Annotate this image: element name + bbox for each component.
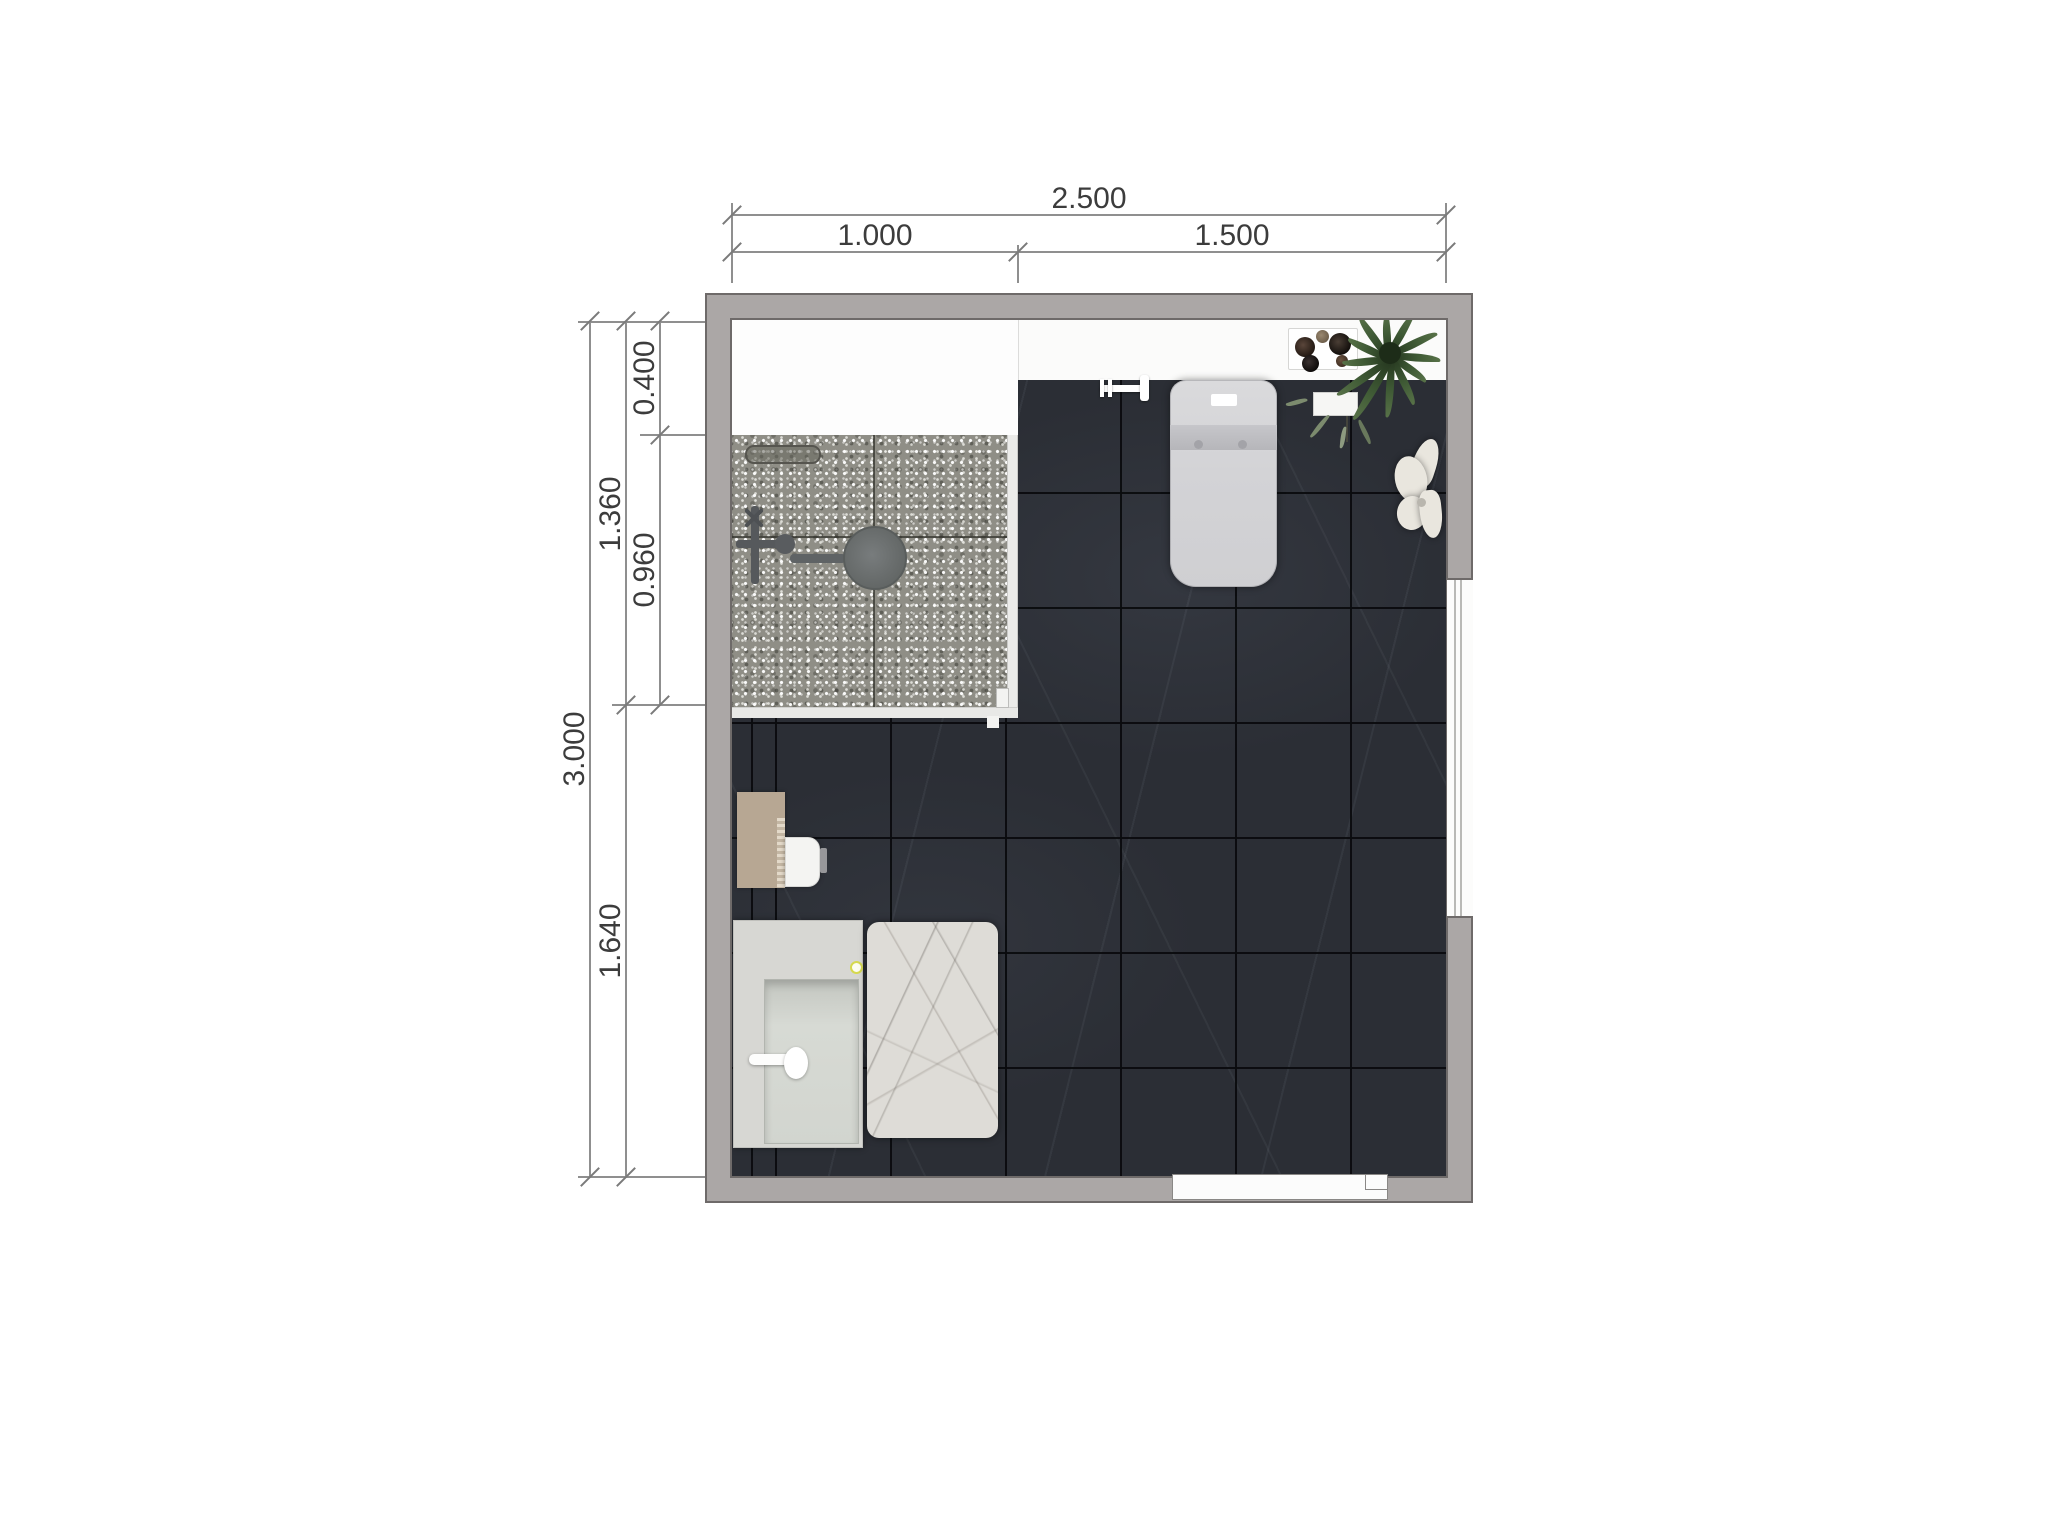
window xyxy=(1447,578,1473,918)
shower-door-pivot xyxy=(987,716,999,728)
dim-left-total: 3.000 xyxy=(558,711,592,786)
extension-line xyxy=(578,321,705,323)
floor-drain-icon xyxy=(745,445,821,464)
sink-vanity xyxy=(733,920,863,1148)
dim-left-top-ledge: 0.400 xyxy=(628,340,662,415)
dim-top-total: 2.500 xyxy=(1051,182,1126,216)
shower-door-frame xyxy=(732,707,1018,718)
shower-ledge xyxy=(732,320,1018,435)
dim-top-left-segment: 1.000 xyxy=(837,219,912,253)
pebble-icon xyxy=(1295,337,1315,357)
shower-door-handle xyxy=(996,688,1009,708)
toilet xyxy=(1170,380,1277,587)
shower-glass-partition xyxy=(1007,435,1018,718)
pebble-icon xyxy=(1302,355,1319,372)
floor-plan-page: 2.500 1.000 1.500 3.000 1.360 1.640 0.40… xyxy=(0,0,2048,1536)
toilet-hinge-icon xyxy=(1238,440,1247,449)
potted-fern-icon xyxy=(1340,318,1440,407)
cabinet-fringe xyxy=(777,818,785,888)
door xyxy=(1172,1174,1388,1200)
paper-holder-icon xyxy=(785,837,820,887)
paper-holder-bracket xyxy=(820,848,827,873)
wall-faucet-handle-icon xyxy=(1108,379,1112,397)
hand-shower-icon xyxy=(775,534,795,554)
dim-top-right-segment: 1.500 xyxy=(1194,219,1269,253)
dim-left-upper-total: 1.360 xyxy=(594,476,628,551)
wall-faucet-handle-icon xyxy=(1100,379,1104,397)
side-cabinet xyxy=(737,792,785,888)
extension-line xyxy=(640,434,705,436)
room-interior xyxy=(730,318,1448,1178)
dimension-line-height-groups xyxy=(625,321,627,1177)
towel-flower-decor-icon xyxy=(1395,438,1448,540)
window-glass-line xyxy=(1460,580,1462,916)
door-handle-notch xyxy=(1365,1174,1388,1190)
sink-faucet-head-icon xyxy=(784,1047,808,1079)
toilet-seat-hinge-band xyxy=(1170,425,1277,450)
toilet-hinge-icon xyxy=(1194,440,1203,449)
dim-left-lower: 1.640 xyxy=(594,903,628,978)
rain-shower-head-icon xyxy=(843,526,907,590)
window-glass-line xyxy=(1454,580,1456,916)
plant-stem xyxy=(1346,416,1348,442)
water-point-icon xyxy=(850,961,863,974)
extension-line xyxy=(578,1176,705,1178)
pebble-icon xyxy=(1316,330,1329,343)
toilet-flush-button xyxy=(1211,394,1237,406)
shower-arm-icon xyxy=(790,554,846,563)
marble-bath-mat xyxy=(867,922,998,1138)
wall-faucet-spout-icon xyxy=(1140,375,1149,401)
dim-left-shower-depth: 0.960 xyxy=(628,532,662,607)
